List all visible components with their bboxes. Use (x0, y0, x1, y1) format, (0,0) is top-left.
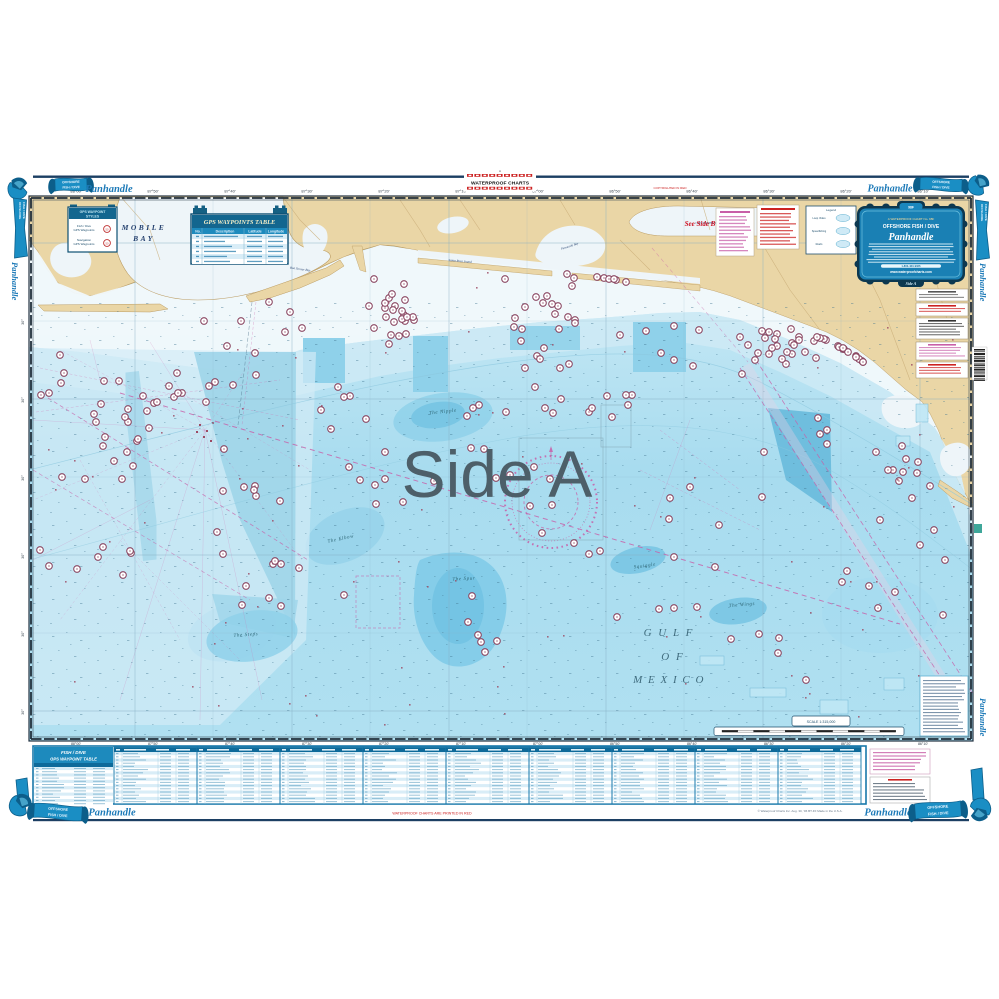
svg-text:GPS WAYPOINTS TABLE: GPS WAYPOINTS TABLE (204, 219, 276, 226)
svg-text:OFFSHORE: OFFSHORE (62, 180, 80, 185)
svg-text:GPS WAYPOINT: GPS WAYPOINT (80, 210, 107, 214)
svg-text:86°20': 86°20' (840, 189, 851, 194)
svg-text:Panhandle: Panhandle (864, 808, 912, 819)
svg-text:O F: O F (661, 651, 684, 663)
svg-text:FISH / DIVE: FISH / DIVE (61, 750, 87, 755)
svg-text:GPS Waypoints: GPS Waypoints (73, 242, 95, 246)
svg-text:A WATERPROOF CHART No. 98F: A WATERPROOF CHART No. 98F (888, 217, 935, 221)
svg-text:1-800-423-9026: 1-800-423-9026 (901, 264, 921, 268)
svg-text:86°40': 86°40' (686, 189, 697, 194)
svg-text:Longitude: Longitude (268, 230, 284, 234)
svg-text:OFFSHORE: OFFSHORE (980, 204, 984, 221)
svg-text:M E X I C O: M E X I C O (632, 674, 705, 686)
svg-text:NAUTICAL MILES: NAUTICAL MILES (798, 737, 820, 741)
svg-text:30°: 30° (21, 397, 25, 403)
svg-text:Panhandle: Panhandle (978, 263, 988, 301)
svg-text:87°40': 87°40' (224, 189, 235, 194)
svg-text:Latitude: Latitude (248, 230, 261, 234)
svg-text:WATERPROOF CHARTS ARE PRINTED: WATERPROOF CHARTS ARE PRINTED IN RED (392, 812, 472, 816)
svg-text:SCALE 1:315,000: SCALE 1:315,000 (807, 720, 836, 724)
svg-text:87°50': 87°50' (147, 189, 158, 194)
svg-text:86°30': 86°30' (763, 189, 774, 194)
svg-text:30°: 30° (21, 319, 25, 325)
svg-text:FISH / DIVE: FISH / DIVE (62, 185, 79, 190)
svg-text:Side A: Side A (402, 437, 593, 511)
svg-text:MOBILE: MOBILE (121, 223, 167, 232)
svg-text:OFFSHORE FISH / DIVE: OFFSHORE FISH / DIVE (883, 224, 940, 230)
svg-text:87°20': 87°20' (378, 189, 389, 194)
svg-text:STYLES: STYLES (86, 215, 100, 219)
svg-text:OFFSHORE: OFFSHORE (932, 180, 950, 185)
svg-text:98F: 98F (908, 206, 914, 210)
svg-text:WATERPROOF CHARTS: WATERPROOF CHARTS (471, 181, 530, 187)
svg-text:Reefs: Reefs (816, 242, 823, 246)
svg-text:G U L F: G U L F (644, 627, 695, 639)
svg-text:30°: 30° (21, 553, 25, 559)
svg-text:Description: Description (216, 230, 235, 234)
svg-text:A: A (499, 169, 501, 173)
svg-text:FISH / DIVE: FISH / DIVE (984, 204, 988, 221)
svg-text:Panhandle: Panhandle (10, 262, 20, 300)
svg-text:See Side B: See Side B (685, 220, 716, 228)
svg-text:FISH / DIVE: FISH / DIVE (22, 202, 26, 219)
svg-text:www.waterproofcharts.com: www.waterproofcharts.com (889, 270, 932, 274)
svg-text:Loop Video: Loop Video (812, 216, 826, 220)
svg-text:Spearfishing: Spearfishing (812, 229, 827, 233)
svg-text:GPS Waypoints: GPS Waypoints (73, 228, 95, 232)
svg-text:Legend: Legend (826, 208, 836, 212)
svg-text:BAY: BAY (132, 234, 155, 243)
svg-text:30°: 30° (21, 631, 25, 637)
svg-text:86°50': 86°50' (609, 189, 620, 194)
svg-text:OFFSHORE: OFFSHORE (18, 202, 22, 219)
svg-text:87°30': 87°30' (301, 189, 312, 194)
svg-text:Panhandle: Panhandle (88, 808, 136, 819)
svg-text:30°: 30° (21, 475, 25, 481)
svg-text:GPS WAYPOINT TABLE: GPS WAYPOINT TABLE (50, 757, 97, 762)
svg-text:COPYRIGHTED IN RED: COPYRIGHTED IN RED (653, 186, 687, 190)
svg-text:© Waterproof Charts Inc. Aug.: © Waterproof Charts Inc. Aug. 30, '06 BT… (758, 809, 843, 813)
svg-text:FISH / DIVE: FISH / DIVE (932, 185, 949, 190)
svg-text:Panhandle: Panhandle (867, 184, 913, 195)
svg-text:No.: No. (195, 230, 201, 234)
svg-text:Panhandle: Panhandle (85, 184, 133, 195)
svg-text:86°10': 86°10' (918, 742, 928, 746)
svg-text:Panhandle: Panhandle (978, 698, 988, 736)
svg-text:Side A: Side A (906, 281, 917, 286)
svg-text:Panhandle: Panhandle (888, 232, 934, 243)
svg-text:30°: 30° (21, 709, 25, 715)
